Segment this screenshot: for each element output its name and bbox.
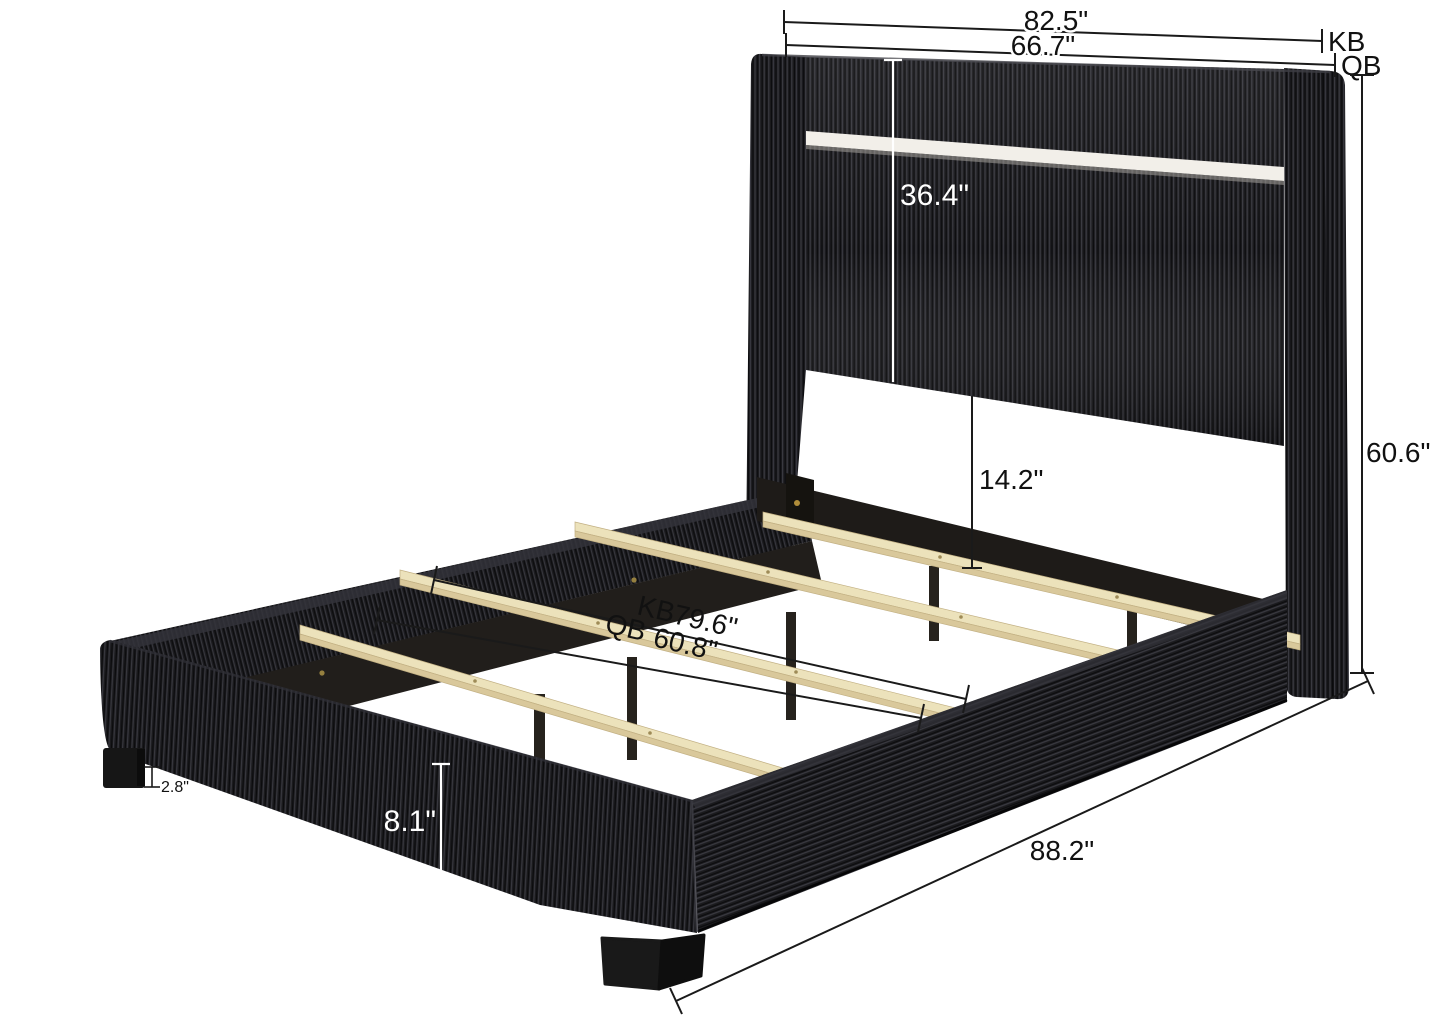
center-leg [627, 657, 637, 760]
inner-rail-screw [631, 577, 636, 582]
headboard-right-wing [1284, 68, 1349, 699]
bed-diagram-canvas: 82.5" KB 66.7" QB 36.4" 60.6" [0, 0, 1445, 1032]
left-foot-shade [137, 749, 145, 786]
bracket-screw [794, 500, 800, 506]
near-foot-side [659, 935, 704, 989]
dim-overall-height: 60.6" [1350, 75, 1430, 673]
center-leg [929, 566, 939, 641]
right-side-rail [692, 590, 1287, 933]
dim-label-66-7: 66.7" [1011, 30, 1075, 61]
inner-rail-screw [319, 670, 324, 675]
headboard-sheen [806, 57, 1284, 446]
dim-label-2-8: 2.8" [161, 779, 189, 796]
dim-label-8-1: 8.1" [384, 805, 436, 838]
dim-label-14-2: 14.2" [979, 464, 1043, 495]
dim-label-88-2: 88.2" [1030, 835, 1094, 866]
bed-base [100, 473, 1300, 989]
near-foot-front [602, 938, 662, 989]
dim-label-36-4: 36.4" [900, 179, 969, 212]
bed-dimension-diagram: 82.5" KB 66.7" QB 36.4" 60.6" [0, 0, 1445, 1032]
dim-label-60-6: 60.6" [1366, 437, 1430, 468]
